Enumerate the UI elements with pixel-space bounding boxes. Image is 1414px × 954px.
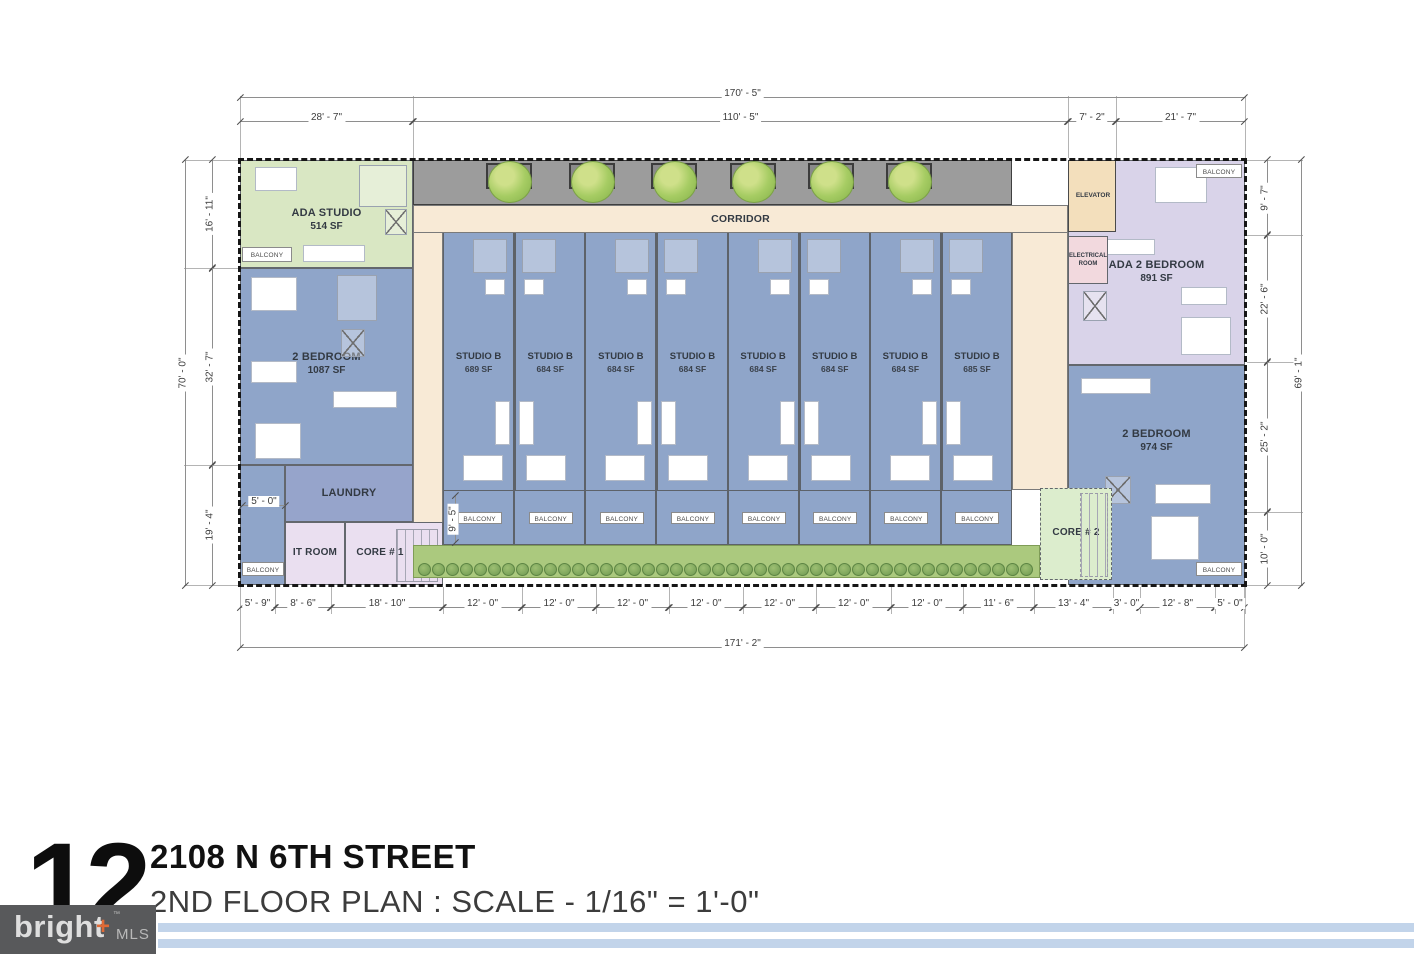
witness-line xyxy=(240,96,241,158)
wardrobe xyxy=(661,401,676,445)
bed xyxy=(811,455,851,481)
dimension-label: 22' - 6" xyxy=(1260,280,1271,317)
tree-icon xyxy=(732,161,776,203)
sofa xyxy=(251,361,297,383)
shrub-icon xyxy=(474,563,487,576)
dimension-label: 19' - 4" xyxy=(205,506,216,543)
wardrobe xyxy=(519,401,534,445)
shrub-icon xyxy=(628,563,641,576)
dim-right-overall: 69' - 1" xyxy=(1292,160,1306,585)
dimension-label: 12' - 0" xyxy=(540,598,577,609)
sofa xyxy=(1181,287,1227,305)
dimension-label: 13' - 4" xyxy=(1055,598,1092,609)
bathroom xyxy=(615,239,649,273)
corridor-right xyxy=(1012,233,1068,490)
dimension-label: 32' - 7" xyxy=(205,348,216,385)
dim-right-segment: 10' - 0" xyxy=(1258,512,1272,585)
shrub-icon xyxy=(544,563,557,576)
dim-bottom-segment: 12' - 8" xyxy=(1140,598,1215,612)
balcony-label-bottom-right: BALCONY xyxy=(1196,562,1242,576)
shrub-icon xyxy=(936,563,949,576)
dim-top-segment: 21' - 7" xyxy=(1116,112,1245,126)
bed xyxy=(890,455,930,481)
bathroom xyxy=(337,275,377,321)
shrub-icon xyxy=(950,563,963,576)
dim-bottom-segment: 12' - 0" xyxy=(522,598,596,612)
logo-suffix: MLS xyxy=(116,926,150,943)
witness-line xyxy=(1247,585,1303,586)
shrub-icon xyxy=(880,563,893,576)
dim-bottom-overall: 171' - 2" xyxy=(240,638,1245,652)
bright-mls-logo: bright + ™ MLS xyxy=(0,905,156,954)
bathroom xyxy=(949,239,983,273)
shrub-icon xyxy=(992,563,1005,576)
shrub-icon xyxy=(810,563,823,576)
sheet-address: 2108 N 6TH STREET xyxy=(150,838,476,876)
studio-unit: STUDIO B684 SF xyxy=(870,233,941,490)
dimension-label: 7' - 2" xyxy=(1076,112,1107,123)
dim-left-segment: 32' - 7" xyxy=(203,268,217,465)
shrub-icon xyxy=(740,563,753,576)
logo-plus-icon: + xyxy=(96,913,110,941)
studio-name: STUDIO B xyxy=(729,351,798,362)
balcony-label: BALCONY xyxy=(458,512,502,524)
bed xyxy=(526,455,566,481)
dim-bottom-segment: 5' - 0" xyxy=(1215,598,1245,612)
dim-interior-5-0: 5' - 0" xyxy=(242,496,286,510)
balcony-label-top-right: BALCONY xyxy=(1196,164,1242,178)
dimension-label: 28' - 7" xyxy=(308,112,345,123)
wardrobe xyxy=(780,401,795,445)
bed xyxy=(953,455,993,481)
studio-sf: 684 SF xyxy=(801,364,869,374)
shrub-icon xyxy=(894,563,907,576)
studio-name: STUDIO B xyxy=(871,351,940,362)
shrub-icon xyxy=(418,563,431,576)
dim-right-segment: 25' - 2" xyxy=(1258,362,1272,512)
room-core2: CORE # 2 xyxy=(1040,488,1112,580)
dimension-label: 5' - 0" xyxy=(1214,598,1245,609)
dimension-label: 18' - 10" xyxy=(366,598,409,609)
shrub-icon xyxy=(614,563,627,576)
shrub-icon xyxy=(908,563,921,576)
dim-interior-9-5: 9' - 5" xyxy=(446,496,460,542)
dim-bottom-segment: 5' - 9" xyxy=(240,598,275,612)
dim-right-segment: 9' - 7" xyxy=(1258,160,1272,235)
bathroom xyxy=(359,165,407,207)
dim-bottom-segment: 11' - 6" xyxy=(963,598,1034,612)
studio-sf: 684 SF xyxy=(516,364,584,374)
shrub-icon xyxy=(642,563,655,576)
bed xyxy=(668,455,708,481)
balcony: BALCONY xyxy=(941,490,1012,545)
footer-stripe-2 xyxy=(158,939,1414,948)
tree-icon xyxy=(571,161,615,203)
dim-top-segment: 28' - 7" xyxy=(240,112,413,126)
bed xyxy=(463,455,503,481)
room-2bedroom-left: 2 BEDROOM 1087 SF xyxy=(240,268,413,465)
dim-bottom-segment: 13' - 4" xyxy=(1034,598,1113,612)
studio-unit: STUDIO B684 SF xyxy=(514,233,585,490)
studio-name: STUDIO B xyxy=(801,351,869,362)
dimension-label: 3' - 0" xyxy=(1111,598,1142,609)
shrub-icon xyxy=(754,563,767,576)
shrub-icon xyxy=(516,563,529,576)
bathroom xyxy=(758,239,792,273)
wardrobe xyxy=(495,401,510,445)
dim-bottom-segment: 12' - 0" xyxy=(443,598,522,612)
shrub-icon xyxy=(488,563,501,576)
dim-left-segment: 19' - 4" xyxy=(203,465,217,585)
shrub-icon xyxy=(572,563,585,576)
logo-brand: bright xyxy=(14,909,105,945)
balcony-label: BALCONY xyxy=(884,512,928,524)
footer-stripe-1 xyxy=(158,923,1414,932)
shrub-icon xyxy=(600,563,613,576)
electrical-room: ELECTRICAL ROOM xyxy=(1068,236,1108,284)
kitchen-counter xyxy=(333,391,397,408)
tick xyxy=(1298,582,1305,589)
dimension-label: 10' - 0" xyxy=(1260,530,1271,567)
balcony: BALCONY xyxy=(870,490,941,545)
balcony-label: BALCONY xyxy=(600,512,644,524)
corridor-left xyxy=(413,233,443,545)
kitchen xyxy=(627,279,647,295)
shrub-icon xyxy=(432,563,445,576)
balcony-label-bottom-left: BALCONY xyxy=(242,562,284,576)
shrub-icon xyxy=(866,563,879,576)
room-sf: 974 SF xyxy=(1069,442,1244,454)
studio-name: STUDIO B xyxy=(516,351,584,362)
studio-unit: STUDIO B684 SF xyxy=(728,233,799,490)
shrub-icon xyxy=(782,563,795,576)
dimension-label: 5' - 0" xyxy=(248,496,279,507)
shrub-icon xyxy=(978,563,991,576)
dimension-label: 12' - 0" xyxy=(614,598,651,609)
shrub-icon xyxy=(1006,563,1019,576)
dimension-label: 8' - 6" xyxy=(287,598,318,609)
balcony-label: BALCONY xyxy=(955,512,999,524)
tree-icon xyxy=(488,161,532,203)
tree-icon xyxy=(888,161,932,203)
dimension-label: 69' - 1" xyxy=(1294,354,1305,391)
dim-bottom-segment: 12' - 0" xyxy=(891,598,963,612)
kitchen xyxy=(666,279,686,295)
shrub-icon xyxy=(712,563,725,576)
wardrobe xyxy=(946,401,961,445)
balcony-label: BALCONY xyxy=(813,512,857,524)
dimension-label: 5' - 9" xyxy=(242,598,273,609)
wardrobe xyxy=(804,401,819,445)
closet xyxy=(1083,291,1107,321)
studio-sf: 684 SF xyxy=(658,364,726,374)
kitchen-counter xyxy=(1081,378,1151,394)
dimension-label: 25' - 2" xyxy=(1260,418,1271,455)
studio-sf: 684 SF xyxy=(729,364,798,374)
kitchen xyxy=(912,279,932,295)
shrub-icon xyxy=(1020,563,1033,576)
dim-top-segment: 110' - 5" xyxy=(413,112,1068,126)
shrub-icon xyxy=(460,563,473,576)
shrub-icon xyxy=(530,563,543,576)
elevator: ELEVATOR xyxy=(1068,160,1116,232)
shrub-icon xyxy=(656,563,669,576)
shrub-icon xyxy=(502,563,515,576)
balcony: BALCONY xyxy=(656,490,727,545)
studio-sf: 684 SF xyxy=(586,364,655,374)
tree-icon xyxy=(810,161,854,203)
dim-left-overall: 70' - 0" xyxy=(176,160,190,585)
dim-right-segment: 22' - 6" xyxy=(1258,235,1272,362)
bathroom xyxy=(473,239,507,273)
closet xyxy=(385,209,407,235)
shrub-icon xyxy=(964,563,977,576)
dim-bottom-segment: 8' - 6" xyxy=(275,598,331,612)
room-laundry: LAUNDRY xyxy=(285,465,413,522)
dimension-label: 12' - 8" xyxy=(1159,598,1196,609)
shrub-icon xyxy=(558,563,571,576)
wardrobe xyxy=(922,401,937,445)
shrub-icon xyxy=(446,563,459,576)
kitchen xyxy=(809,279,829,295)
kitchen xyxy=(485,279,505,295)
studio-unit: STUDIO B684 SF xyxy=(585,233,656,490)
kitchen xyxy=(951,279,971,295)
shrub-icon xyxy=(824,563,837,576)
shrub-icon xyxy=(670,563,683,576)
shrub-icon xyxy=(586,563,599,576)
balcony: BALCONY xyxy=(799,490,870,545)
stairs xyxy=(1080,493,1108,577)
dim-bottom-segment: 12' - 0" xyxy=(743,598,816,612)
dim-top-segment: 7' - 2" xyxy=(1068,112,1116,126)
dimension-label: 171' - 2" xyxy=(721,638,764,649)
dim-left-segment: 16' - 11" xyxy=(203,160,217,268)
bed xyxy=(1151,516,1199,560)
shrub-icon xyxy=(922,563,935,576)
studio-sf: 685 SF xyxy=(943,364,1011,374)
shrub-icon xyxy=(852,563,865,576)
studio-name: STUDIO B xyxy=(943,351,1011,362)
dimension-label: 170' - 5" xyxy=(721,88,764,99)
bathroom xyxy=(900,239,934,273)
witness-line xyxy=(413,96,414,158)
dimension-label: 12' - 0" xyxy=(464,598,501,609)
dim-bottom-segment: 18' - 10" xyxy=(331,598,443,612)
studio-sf: 684 SF xyxy=(871,364,940,374)
kitchen-counter xyxy=(303,245,365,262)
bathroom xyxy=(664,239,698,273)
kitchen xyxy=(524,279,544,295)
balcony: BALCONY xyxy=(585,490,656,545)
dimension-label: 12' - 0" xyxy=(835,598,872,609)
balcony: BALCONY xyxy=(728,490,799,545)
room-label: 2 BEDROOM xyxy=(1069,428,1244,441)
studio-name: STUDIO B xyxy=(444,351,513,362)
wardrobe xyxy=(637,401,652,445)
dim-top-overall: 170' - 5" xyxy=(240,88,1245,102)
studio-unit: STUDIO B685 SF xyxy=(941,233,1012,490)
bed xyxy=(1181,317,1231,355)
floor-plan-sheet: CORRIDOR ADA STUDIO 514 SF BALCONY 2 BED… xyxy=(0,0,1414,954)
dimension-label: 11' - 6" xyxy=(980,598,1016,609)
witness-line xyxy=(1068,96,1069,158)
shrub-icon xyxy=(698,563,711,576)
balcony-label: BALCONY xyxy=(671,512,715,524)
dimension-label: 12' - 0" xyxy=(761,598,798,609)
bed xyxy=(605,455,645,481)
studio-sf: 689 SF xyxy=(444,364,513,374)
sofa xyxy=(255,167,297,191)
shrub-icon xyxy=(796,563,809,576)
balcony: BALCONY xyxy=(514,490,585,545)
logo-trademark: ™ xyxy=(113,911,120,918)
dimension-label: 9' - 7" xyxy=(1260,182,1271,213)
elevator-label: ELEVATOR xyxy=(1073,192,1113,199)
dimension-label: 12' - 0" xyxy=(687,598,724,609)
studio-unit: STUDIO B684 SF xyxy=(656,233,727,490)
shrub-icon xyxy=(838,563,851,576)
balcony-label: BALCONY xyxy=(742,512,786,524)
shrub-icon xyxy=(684,563,697,576)
bed xyxy=(255,423,301,459)
corridor-label: CORRIDOR xyxy=(414,213,1067,225)
bed xyxy=(251,277,297,311)
dimension-label: 110' - 5" xyxy=(720,112,762,123)
witness-line xyxy=(1245,96,1246,158)
dimension-label: 9' - 5" xyxy=(448,503,459,534)
bathroom xyxy=(522,239,556,273)
balcony-label-top-left: BALCONY xyxy=(242,247,292,262)
kitchen xyxy=(770,279,790,295)
dim-bottom-segment: 12' - 0" xyxy=(669,598,743,612)
bathroom xyxy=(807,239,841,273)
balcony-label: BALCONY xyxy=(529,512,573,524)
dimension-label: 21' - 7" xyxy=(1162,112,1199,123)
studio-name: STUDIO B xyxy=(658,351,726,362)
bed xyxy=(748,455,788,481)
sofa xyxy=(1155,484,1211,504)
shrub-icon xyxy=(768,563,781,576)
studio-name: STUDIO B xyxy=(586,351,655,362)
sheet-subtitle: 2ND FLOOR PLAN : SCALE - 1/16" = 1'-0" xyxy=(150,884,759,920)
dimension-label: 70' - 0" xyxy=(178,354,189,391)
electrical-label: ELECTRICAL ROOM xyxy=(1069,253,1107,269)
corridor-horizontal: CORRIDOR xyxy=(413,205,1068,233)
witness-line xyxy=(1116,96,1117,158)
studio-unit: STUDIO B684 SF xyxy=(799,233,870,490)
tree-icon xyxy=(653,161,697,203)
studio-unit: STUDIO B689 SF xyxy=(443,233,514,490)
dim-bottom-segment: 12' - 0" xyxy=(596,598,669,612)
shrub-icon xyxy=(726,563,739,576)
dimension-label: 16' - 11" xyxy=(205,193,216,235)
dimension-label: 12' - 0" xyxy=(908,598,945,609)
room-label: LAUNDRY xyxy=(286,487,412,500)
dim-bottom-segment: 12' - 0" xyxy=(816,598,891,612)
closet xyxy=(341,329,365,357)
